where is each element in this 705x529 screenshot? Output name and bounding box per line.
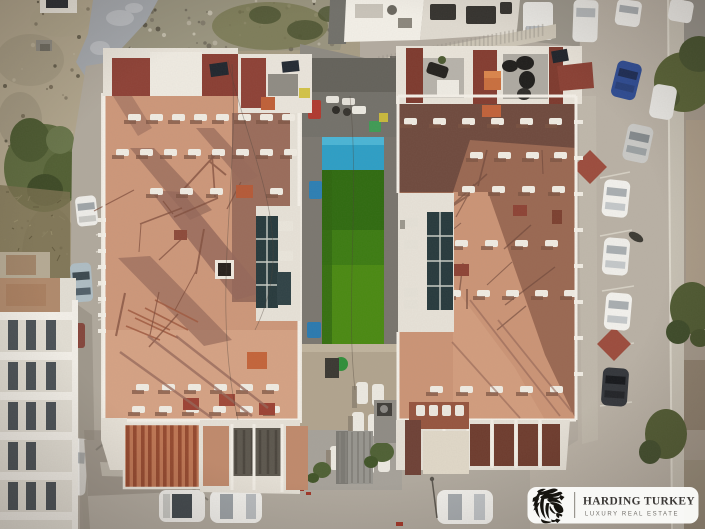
svg-text:HARDING TURKEY: HARDING TURKEY: [583, 496, 695, 508]
svg-text:LUXURY REAL ESTATE: LUXURY REAL ESTATE: [585, 512, 679, 518]
